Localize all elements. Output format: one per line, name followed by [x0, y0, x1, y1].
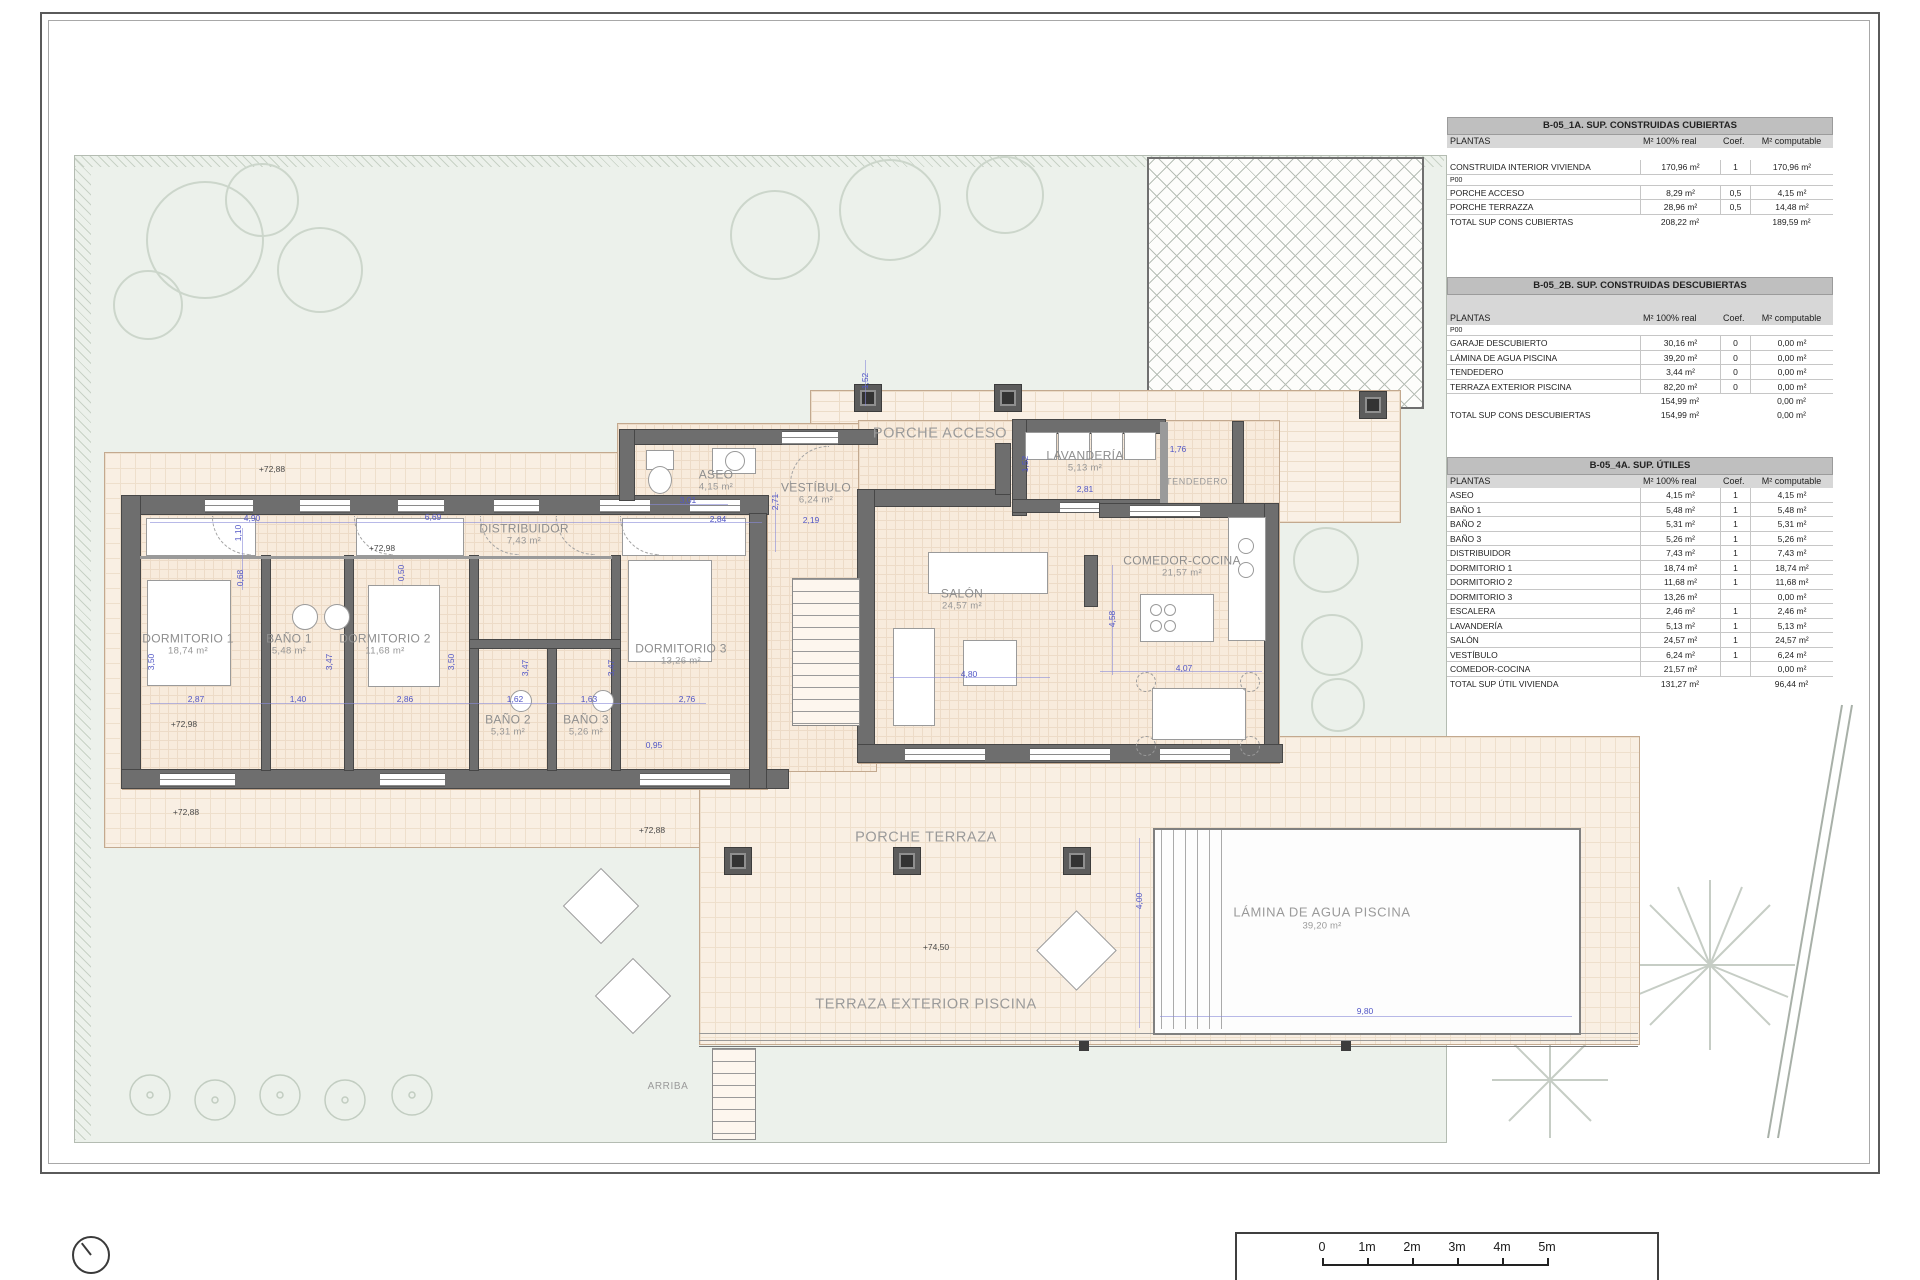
- table-cell-comp: 0,00 m²: [1750, 351, 1833, 365]
- room-area: 6,24 m²: [781, 495, 851, 506]
- table-cell-comp: 170,96 m²: [1750, 160, 1833, 174]
- dimension-label: 1,62: [507, 694, 524, 704]
- dimension-label: 3,47: [520, 660, 530, 677]
- room-name: BAÑO 2: [485, 714, 531, 728]
- room-label: ASEO4,15 m²: [699, 469, 734, 494]
- table-cell-real: 170,96 m²: [1640, 160, 1720, 174]
- dimension-label: 0,50: [396, 565, 406, 582]
- table-header-row: PLANTASM² 100% realCoef.M² computable: [1447, 135, 1833, 148]
- area-table: B-05_4A. SUP. ÚTILESPLANTASM² 100% realC…: [1447, 457, 1833, 691]
- area-table: B-05_1A. SUP. CONSTRUIDAS CUBIERTASPLANT…: [1447, 117, 1833, 229]
- table-section-row: P00: [1447, 175, 1833, 186]
- table-cell-comp: 0,00 m²: [1750, 394, 1833, 408]
- room-name: DORMITORIO 1: [142, 633, 233, 647]
- table-cell-coef: 0: [1720, 365, 1750, 379]
- room-name: LAVANDERÍA: [1046, 450, 1123, 464]
- zone-name: ARRIBA: [648, 1081, 689, 1093]
- room-name: BAÑO 1: [266, 633, 312, 647]
- room-name: VESTÍBULO: [781, 482, 851, 496]
- table-header-cell: PLANTAS: [1447, 135, 1640, 148]
- dimension-label: 3,47: [606, 660, 616, 677]
- table-cell-label: CONSTRUIDA INTERIOR VIVIENDA: [1447, 160, 1640, 174]
- table-row: PORCHE ACCESO8,29 m²0,54,15 m²: [1447, 186, 1833, 201]
- table-cell-coef: [1720, 677, 1750, 691]
- dimension-label: 2,19: [803, 515, 820, 525]
- level-marker: +74,50: [923, 942, 949, 952]
- room-area: 5,31 m²: [485, 727, 531, 738]
- table-cell-label: LAVANDERÍA: [1447, 619, 1640, 633]
- scale-line: [1322, 1264, 1547, 1266]
- scale-label: 3m: [1448, 1240, 1465, 1254]
- dimension-label: 6,69: [425, 512, 442, 522]
- zone-label: TENDEDERO: [1166, 477, 1228, 488]
- table-section-label: P00: [1447, 325, 1640, 335]
- table-cell-coef: 0,5: [1720, 186, 1750, 200]
- table-cell-coef: 0: [1720, 380, 1750, 394]
- room-area: 5,48 m²: [266, 646, 312, 657]
- table-cell-label: VESTÍBULO: [1447, 648, 1640, 662]
- room-label: VESTÍBULO6,24 m²: [781, 482, 851, 507]
- dimension-label: 1,52: [1020, 456, 1030, 473]
- table-cell-label: DORMITORIO 3: [1447, 590, 1640, 604]
- table-header-text: PLANTAS: [1450, 313, 1490, 323]
- table-header-cell: M² computable: [1750, 295, 1833, 325]
- table-cell-real: 24,57 m²: [1640, 633, 1720, 647]
- table-cell-real: 3,44 m²: [1640, 365, 1720, 379]
- table-cell-label: PORCHE TERRAZZA: [1447, 200, 1640, 214]
- dimension-label: 3,01: [680, 495, 697, 505]
- table-cell-comp: 0,00 m²: [1750, 336, 1833, 350]
- table-cell-label: PORCHE ACCESO: [1447, 186, 1640, 200]
- table-header-row: PLANTASM² 100% realCoef.M² computable: [1447, 295, 1833, 325]
- table-header-cell: PLANTAS: [1447, 295, 1640, 325]
- table-header-cell: PLANTAS: [1447, 475, 1640, 488]
- table-cell-comp: 0,00 m²: [1750, 380, 1833, 394]
- zone-name: TENDEDERO: [1166, 477, 1228, 488]
- table-gap-row: [1447, 148, 1833, 160]
- table-title: B-05_2B. SUP. CONSTRUIDAS DESCUBIERTAS: [1447, 277, 1833, 295]
- table-cell-comp: 5,13 m²: [1750, 619, 1833, 633]
- room-area: 24,57 m²: [941, 601, 983, 612]
- table-cell-label: [1447, 394, 1640, 408]
- table-row: TOTAL SUP ÚTIL VIVIENDA131,27 m²96,44 m²: [1447, 677, 1833, 691]
- table-cell-coef: [1720, 408, 1750, 422]
- table-header-cell: Coef.: [1720, 475, 1750, 488]
- table-cell-real: 4,15 m²: [1640, 488, 1720, 502]
- dimension-label: 1,63: [581, 694, 598, 704]
- table-cell-label: DORMITORIO 1: [1447, 561, 1640, 575]
- table-cell-label: BAÑO 3: [1447, 532, 1640, 546]
- room-label: COMEDOR-COCINA21,57 m²: [1123, 555, 1241, 580]
- dimension-label: 4,00: [1134, 893, 1144, 910]
- table-row: GARAJE DESCUBIERTO30,16 m²00,00 m²: [1447, 336, 1833, 351]
- room-label: SALÓN24,57 m²: [941, 588, 983, 613]
- level-marker: +72,88: [173, 807, 199, 817]
- table-row: LAVANDERÍA5,13 m²15,13 m²: [1447, 619, 1833, 634]
- table-cell-real: 8,29 m²: [1640, 186, 1720, 200]
- table-cell-comp: 4,15 m²: [1750, 488, 1833, 502]
- table-cell-comp: 0,00 m²: [1750, 590, 1833, 604]
- table-cell-coef: 1: [1720, 633, 1750, 647]
- table-cell-comp: 4,15 m²: [1750, 186, 1833, 200]
- table-cell-comp: 5,48 m²: [1750, 503, 1833, 517]
- scale-label: 1m: [1358, 1240, 1375, 1254]
- room-area: 13,26 m²: [635, 656, 726, 667]
- table-section-row: P00: [1447, 325, 1833, 336]
- table-section-label: P00: [1447, 175, 1640, 185]
- table-cell-real: 208,22 m²: [1640, 215, 1720, 229]
- room-name: ASEO: [699, 469, 734, 483]
- table-cell-coef: 1: [1720, 160, 1750, 174]
- table-row: DORMITORIO 118,74 m²118,74 m²: [1447, 561, 1833, 576]
- scale-label: 2m: [1403, 1240, 1420, 1254]
- table-cell-real: 5,13 m²: [1640, 619, 1720, 633]
- table-cell-real: 5,48 m²: [1640, 503, 1720, 517]
- table-header-text: PLANTAS: [1450, 476, 1490, 486]
- table-cell-label: ESCALERA: [1447, 604, 1640, 618]
- room-label: LAVANDERÍA5,13 m²: [1046, 450, 1123, 475]
- table-cell-comp: 11,68 m²: [1750, 575, 1833, 589]
- zone-area: 39,20 m²: [1233, 920, 1410, 931]
- dimension-label: 4,80: [961, 669, 978, 679]
- table-row: PORCHE TERRAZZA28,96 m²0,514,48 m²: [1447, 200, 1833, 215]
- table-header-text: Coef.: [1723, 313, 1745, 323]
- dimension-label: 4,58: [1107, 611, 1117, 628]
- table-row: ASEO4,15 m²14,15 m²: [1447, 488, 1833, 503]
- table-cell-real: 6,24 m²: [1640, 648, 1720, 662]
- table-cell-coef: 1: [1720, 546, 1750, 560]
- dimension-label: 3,47: [324, 654, 334, 671]
- room-name: COMEDOR-COCINA: [1123, 555, 1241, 569]
- table-title: B-05_1A. SUP. CONSTRUIDAS CUBIERTAS: [1447, 117, 1833, 135]
- table-cell-coef: [1720, 662, 1750, 676]
- table-cell-label: TOTAL SUP CONS CUBIERTAS: [1447, 215, 1640, 229]
- table-header-cell: M² 100% real: [1640, 135, 1720, 148]
- table-cell-comp: 0,00 m²: [1750, 408, 1833, 422]
- table-header-cell: M² 100% real: [1640, 295, 1720, 325]
- table-cell-real: 7,43 m²: [1640, 546, 1720, 560]
- room-area: 4,15 m²: [699, 482, 734, 493]
- table-row: DISTRIBUIDOR7,43 m²17,43 m²: [1447, 546, 1833, 561]
- table-cell-label: TENDEDERO: [1447, 365, 1640, 379]
- table-header-text: M² computable: [1753, 476, 1830, 486]
- table-cell-coef: 0: [1720, 336, 1750, 350]
- table-cell-label: LÁMINA DE AGUA PISCINA: [1447, 351, 1640, 365]
- table-cell-coef: [1720, 215, 1750, 229]
- level-marker: +72,98: [369, 543, 395, 553]
- table-cell-label: TOTAL SUP ÚTIL VIVIENDA: [1447, 677, 1640, 691]
- table-cell-coef: 1: [1720, 532, 1750, 546]
- dimension-label: 1,40: [290, 694, 307, 704]
- room-area: 21,57 m²: [1123, 568, 1241, 579]
- table-cell-comp: 14,48 m²: [1750, 200, 1833, 214]
- scale-label: 0: [1319, 1240, 1326, 1254]
- room-name: DORMITORIO 3: [635, 643, 726, 657]
- table-cell-coef: 1: [1720, 619, 1750, 633]
- dimension-label: 9,80: [1357, 1006, 1374, 1016]
- table-cell-coef: 1: [1720, 503, 1750, 517]
- table-cell-coef: 1: [1720, 604, 1750, 618]
- zone-label: TERRAZA EXTERIOR PISCINA: [815, 996, 1036, 1013]
- table-cell-real: 18,74 m²: [1640, 561, 1720, 575]
- table-row: LÁMINA DE AGUA PISCINA39,20 m²00,00 m²: [1447, 351, 1833, 366]
- table-cell-real: 82,20 m²: [1640, 380, 1720, 394]
- room-name: DORMITORIO 2: [339, 633, 430, 647]
- dimension-label: 3,50: [146, 654, 156, 671]
- table-cell-coef: 1: [1720, 488, 1750, 502]
- table-header-cell: Coef.: [1720, 295, 1750, 325]
- table-header-cell: M² computable: [1750, 475, 1833, 488]
- table-header-row: PLANTASM² 100% realCoef.M² computable: [1447, 475, 1833, 488]
- level-marker: +72,88: [259, 464, 285, 474]
- table-cell-label: BAÑO 1: [1447, 503, 1640, 517]
- table-cell-comp: 0,00 m²: [1750, 365, 1833, 379]
- table-cell-comp: 24,57 m²: [1750, 633, 1833, 647]
- table-row: BAÑO 25,31 m²15,31 m²: [1447, 517, 1833, 532]
- table-header-cell: Coef.: [1720, 135, 1750, 148]
- table-row: TENDEDERO3,44 m²00,00 m²: [1447, 365, 1833, 380]
- table-cell-label: DISTRIBUIDOR: [1447, 546, 1640, 560]
- table-cell-real: 154,99 m²: [1640, 408, 1720, 422]
- scale-label: 4m: [1493, 1240, 1510, 1254]
- zone-label: PORCHE TERRAZA: [855, 829, 997, 846]
- scale-bar: [1235, 1232, 1659, 1280]
- table-header-text: M² 100% real: [1643, 136, 1697, 146]
- table-cell-label: SALÓN: [1447, 633, 1640, 647]
- zone-name: PORCHE ACCESO: [873, 425, 1007, 442]
- zone-name: PORCHE TERRAZA: [855, 829, 997, 846]
- table-cell-comp: 6,24 m²: [1750, 648, 1833, 662]
- dimension-label: 0,95: [646, 740, 663, 750]
- room-area: 11,68 m²: [339, 646, 430, 657]
- table-cell-label: GARAJE DESCUBIERTO: [1447, 336, 1640, 350]
- table-cell-real: 131,27 m²: [1640, 677, 1720, 691]
- table-row: VESTÍBULO6,24 m²16,24 m²: [1447, 648, 1833, 663]
- table-cell-real: 39,20 m²: [1640, 351, 1720, 365]
- table-row: COMEDOR-COCINA21,57 m²0,00 m²: [1447, 662, 1833, 677]
- room-name: BAÑO 3: [563, 714, 609, 728]
- table-row: SALÓN24,57 m²124,57 m²: [1447, 633, 1833, 648]
- dimension-label: 4,90: [244, 513, 261, 523]
- table-title: B-05_4A. SUP. ÚTILES: [1447, 457, 1833, 475]
- table-header-text: Coef.: [1723, 476, 1745, 486]
- table-cell-label: TOTAL SUP CONS DESCUBIERTAS: [1447, 408, 1640, 422]
- table-header-text: M² 100% real: [1643, 313, 1697, 323]
- room-area: 7,43 m²: [479, 536, 569, 547]
- dimension-label: 2,84: [710, 514, 727, 524]
- table-cell-comp: 2,46 m²: [1750, 604, 1833, 618]
- table-header-cell: M² 100% real: [1640, 475, 1720, 488]
- table-cell-real: 5,31 m²: [1640, 517, 1720, 531]
- table-cell-real: 5,26 m²: [1640, 532, 1720, 546]
- table-cell-label: COMEDOR-COCINA: [1447, 662, 1640, 676]
- table-cell-coef: 0: [1720, 351, 1750, 365]
- dimension-label: 2,86: [397, 694, 414, 704]
- dimension-label: 2,81: [1077, 484, 1094, 494]
- table-cell-real: 28,96 m²: [1640, 200, 1720, 214]
- table-cell-coef: 1: [1720, 575, 1750, 589]
- dimension-label: 3,50: [446, 654, 456, 671]
- dimension-label: 2,87: [188, 694, 205, 704]
- level-marker: +72,88: [639, 825, 665, 835]
- zone-name: LÁMINA DE AGUA PISCINA: [1233, 905, 1410, 921]
- dimension-label: 1,10: [233, 525, 243, 542]
- room-area: 18,74 m²: [142, 646, 233, 657]
- room-area: 5,26 m²: [563, 727, 609, 738]
- table-row: DORMITORIO 211,68 m²111,68 m²: [1447, 575, 1833, 590]
- table-cell-comp: 5,31 m²: [1750, 517, 1833, 531]
- table-row: ESCALERA2,46 m²12,46 m²: [1447, 604, 1833, 619]
- table-header-text: M² computable: [1753, 136, 1830, 146]
- table-cell-coef: 1: [1720, 517, 1750, 531]
- table-cell-coef: [1720, 394, 1750, 408]
- table-cell-coef: [1720, 590, 1750, 604]
- table-header-text: M² computable: [1753, 313, 1830, 323]
- drawing-sheet: DORMITORIO 118,74 m²BAÑO 15,48 m²DORMITO…: [0, 0, 1920, 1280]
- table-header-cell: M² computable: [1750, 135, 1833, 148]
- table-cell-real: 11,68 m²: [1640, 575, 1720, 589]
- table-cell-label: ASEO: [1447, 488, 1640, 502]
- table-cell-comp: 5,26 m²: [1750, 532, 1833, 546]
- table-cell-comp: 7,43 m²: [1750, 546, 1833, 560]
- table-header-text: PLANTAS: [1450, 136, 1490, 146]
- room-name: SALÓN: [941, 588, 983, 602]
- room-label: DORMITORIO 211,68 m²: [339, 633, 430, 658]
- zone-label: PORCHE ACCESO: [873, 425, 1007, 442]
- table-cell-real: 21,57 m²: [1640, 662, 1720, 676]
- table-row: CONSTRUIDA INTERIOR VIVIENDA170,96 m²117…: [1447, 160, 1833, 175]
- table-cell-comp: 18,74 m²: [1750, 561, 1833, 575]
- table-cell-real: 13,26 m²: [1640, 590, 1720, 604]
- level-marker: +72,98: [171, 719, 197, 729]
- room-label: DISTRIBUIDOR7,43 m²: [479, 523, 569, 548]
- table-header-text: M² 100% real: [1643, 476, 1697, 486]
- table-row: TOTAL SUP CONS CUBIERTAS208,22 m²189,59 …: [1447, 215, 1833, 229]
- table-cell-comp: 0,00 m²: [1750, 662, 1833, 676]
- table-cell-real: 154,99 m²: [1640, 394, 1720, 408]
- scale-label: 5m: [1538, 1240, 1555, 1254]
- zone-label: ARRIBA: [648, 1081, 689, 1093]
- dimension-label: 2,71: [770, 494, 780, 511]
- room-label: BAÑO 35,26 m²: [563, 714, 609, 739]
- table-row: DORMITORIO 313,26 m²0,00 m²: [1447, 590, 1833, 605]
- table-row: 154,99 m²0,00 m²: [1447, 394, 1833, 408]
- dimension-label: 1,76: [1170, 444, 1187, 454]
- table-row: BAÑO 15,48 m²15,48 m²: [1447, 503, 1833, 518]
- table-cell-label: BAÑO 2: [1447, 517, 1640, 531]
- room-label: DORMITORIO 118,74 m²: [142, 633, 233, 658]
- room-label: BAÑO 25,31 m²: [485, 714, 531, 739]
- table-cell-comp: 189,59 m²: [1750, 215, 1833, 229]
- table-cell-coef: 1: [1720, 561, 1750, 575]
- zone-name: TERRAZA EXTERIOR PISCINA: [815, 996, 1036, 1013]
- table-header-text: Coef.: [1723, 136, 1745, 146]
- dimension-label: 0,68: [235, 570, 245, 587]
- table-cell-comp: 96,44 m²: [1750, 677, 1833, 691]
- table-cell-label: DORMITORIO 2: [1447, 575, 1640, 589]
- table-row: TERRAZA EXTERIOR PISCINA82,20 m²00,00 m²: [1447, 380, 1833, 395]
- table-cell-real: 2,46 m²: [1640, 604, 1720, 618]
- north-symbol: [72, 1236, 110, 1274]
- room-label: DORMITORIO 313,26 m²: [635, 643, 726, 668]
- room-area: 5,13 m²: [1046, 463, 1123, 474]
- table-row: BAÑO 35,26 m²15,26 m²: [1447, 532, 1833, 547]
- table-cell-label: TERRAZA EXTERIOR PISCINA: [1447, 380, 1640, 394]
- zone-label: LÁMINA DE AGUA PISCINA39,20 m²: [1233, 905, 1410, 932]
- room-label: BAÑO 15,48 m²: [266, 633, 312, 658]
- room-name: DISTRIBUIDOR: [479, 523, 569, 537]
- table-cell-coef: 1: [1720, 648, 1750, 662]
- table-row: TOTAL SUP CONS DESCUBIERTAS154,99 m²0,00…: [1447, 408, 1833, 422]
- dimension-label: 1,52: [860, 373, 870, 390]
- dimension-label: 2,76: [679, 694, 696, 704]
- dimension-label: 4,07: [1176, 663, 1193, 673]
- table-cell-real: 30,16 m²: [1640, 336, 1720, 350]
- area-table: B-05_2B. SUP. CONSTRUIDAS DESCUBIERTASPL…: [1447, 277, 1833, 422]
- scale-tick: [1547, 1258, 1549, 1266]
- table-cell-coef: 0,5: [1720, 200, 1750, 214]
